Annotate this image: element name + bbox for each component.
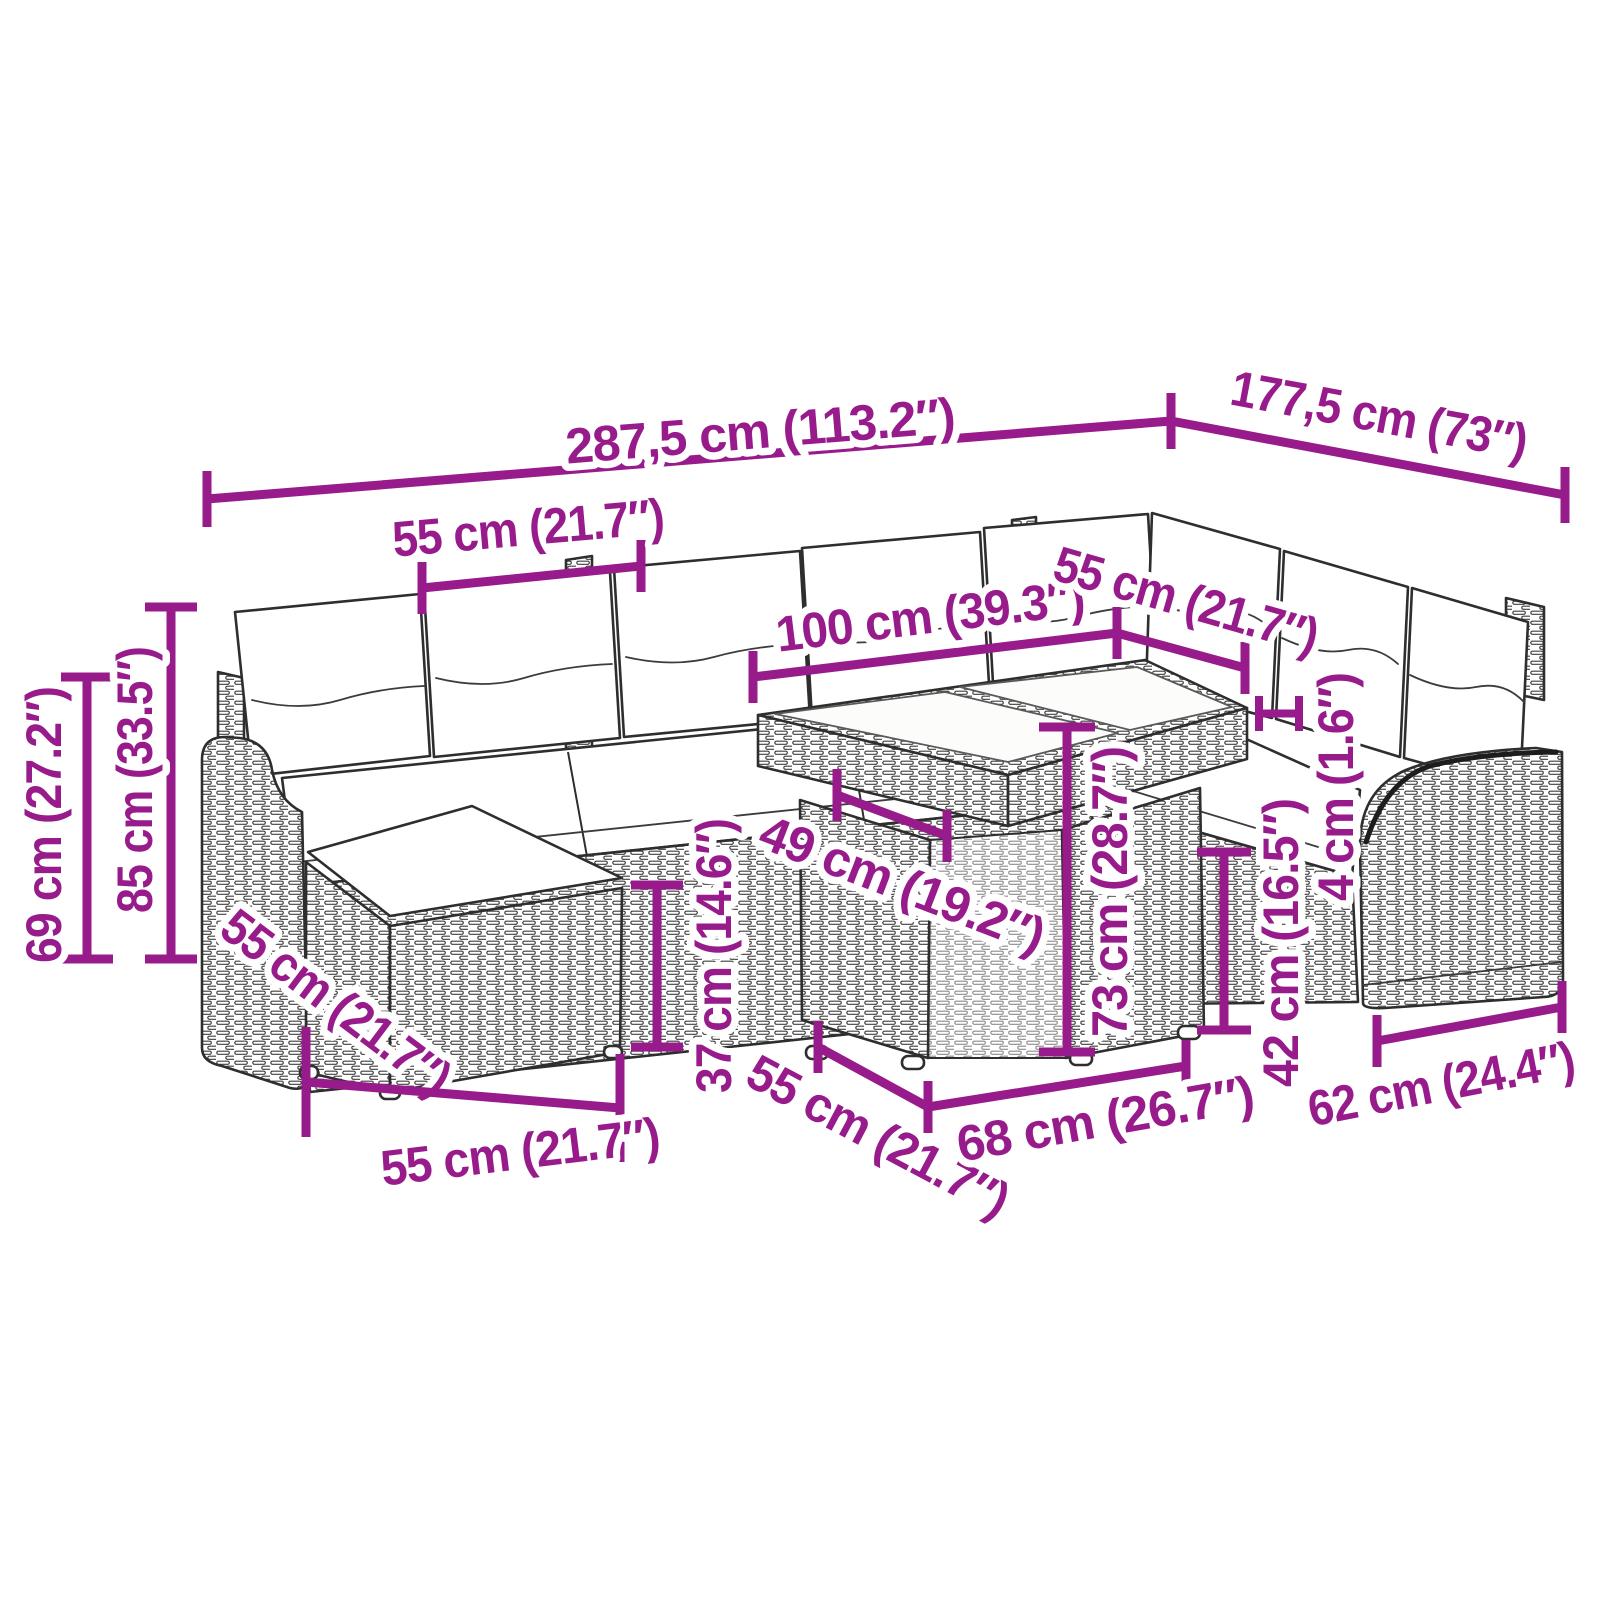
product-dimension-diagram: 287,5 cm (113.2″) 177,5 cm (73″) 55 cm (… — [0, 0, 1600, 1600]
dim-seat-height-label: 37 cm (14.6″) — [686, 819, 742, 1093]
diagram-canvas: 287,5 cm (113.2″) 177,5 cm (73″) 55 cm (… — [0, 0, 1600, 1600]
table-foot — [902, 1056, 924, 1069]
dim-table-height-label: 73 cm (28.7″) — [1082, 747, 1138, 1037]
rattan-post — [218, 672, 244, 742]
dim-armrest-height-label: 69 cm (27.2″) — [16, 687, 72, 963]
table-foot — [1178, 1026, 1200, 1039]
right-armrest — [1360, 748, 1563, 1008]
dim-cushion-thickness-label: 4 cm (1.6″) — [1308, 673, 1364, 901]
dim-total-height-label: 85 cm (33.5″) — [107, 647, 163, 913]
dim-side-section-height-label: 42 cm (16.5″) — [1253, 799, 1309, 1087]
back-cushion — [424, 572, 620, 757]
